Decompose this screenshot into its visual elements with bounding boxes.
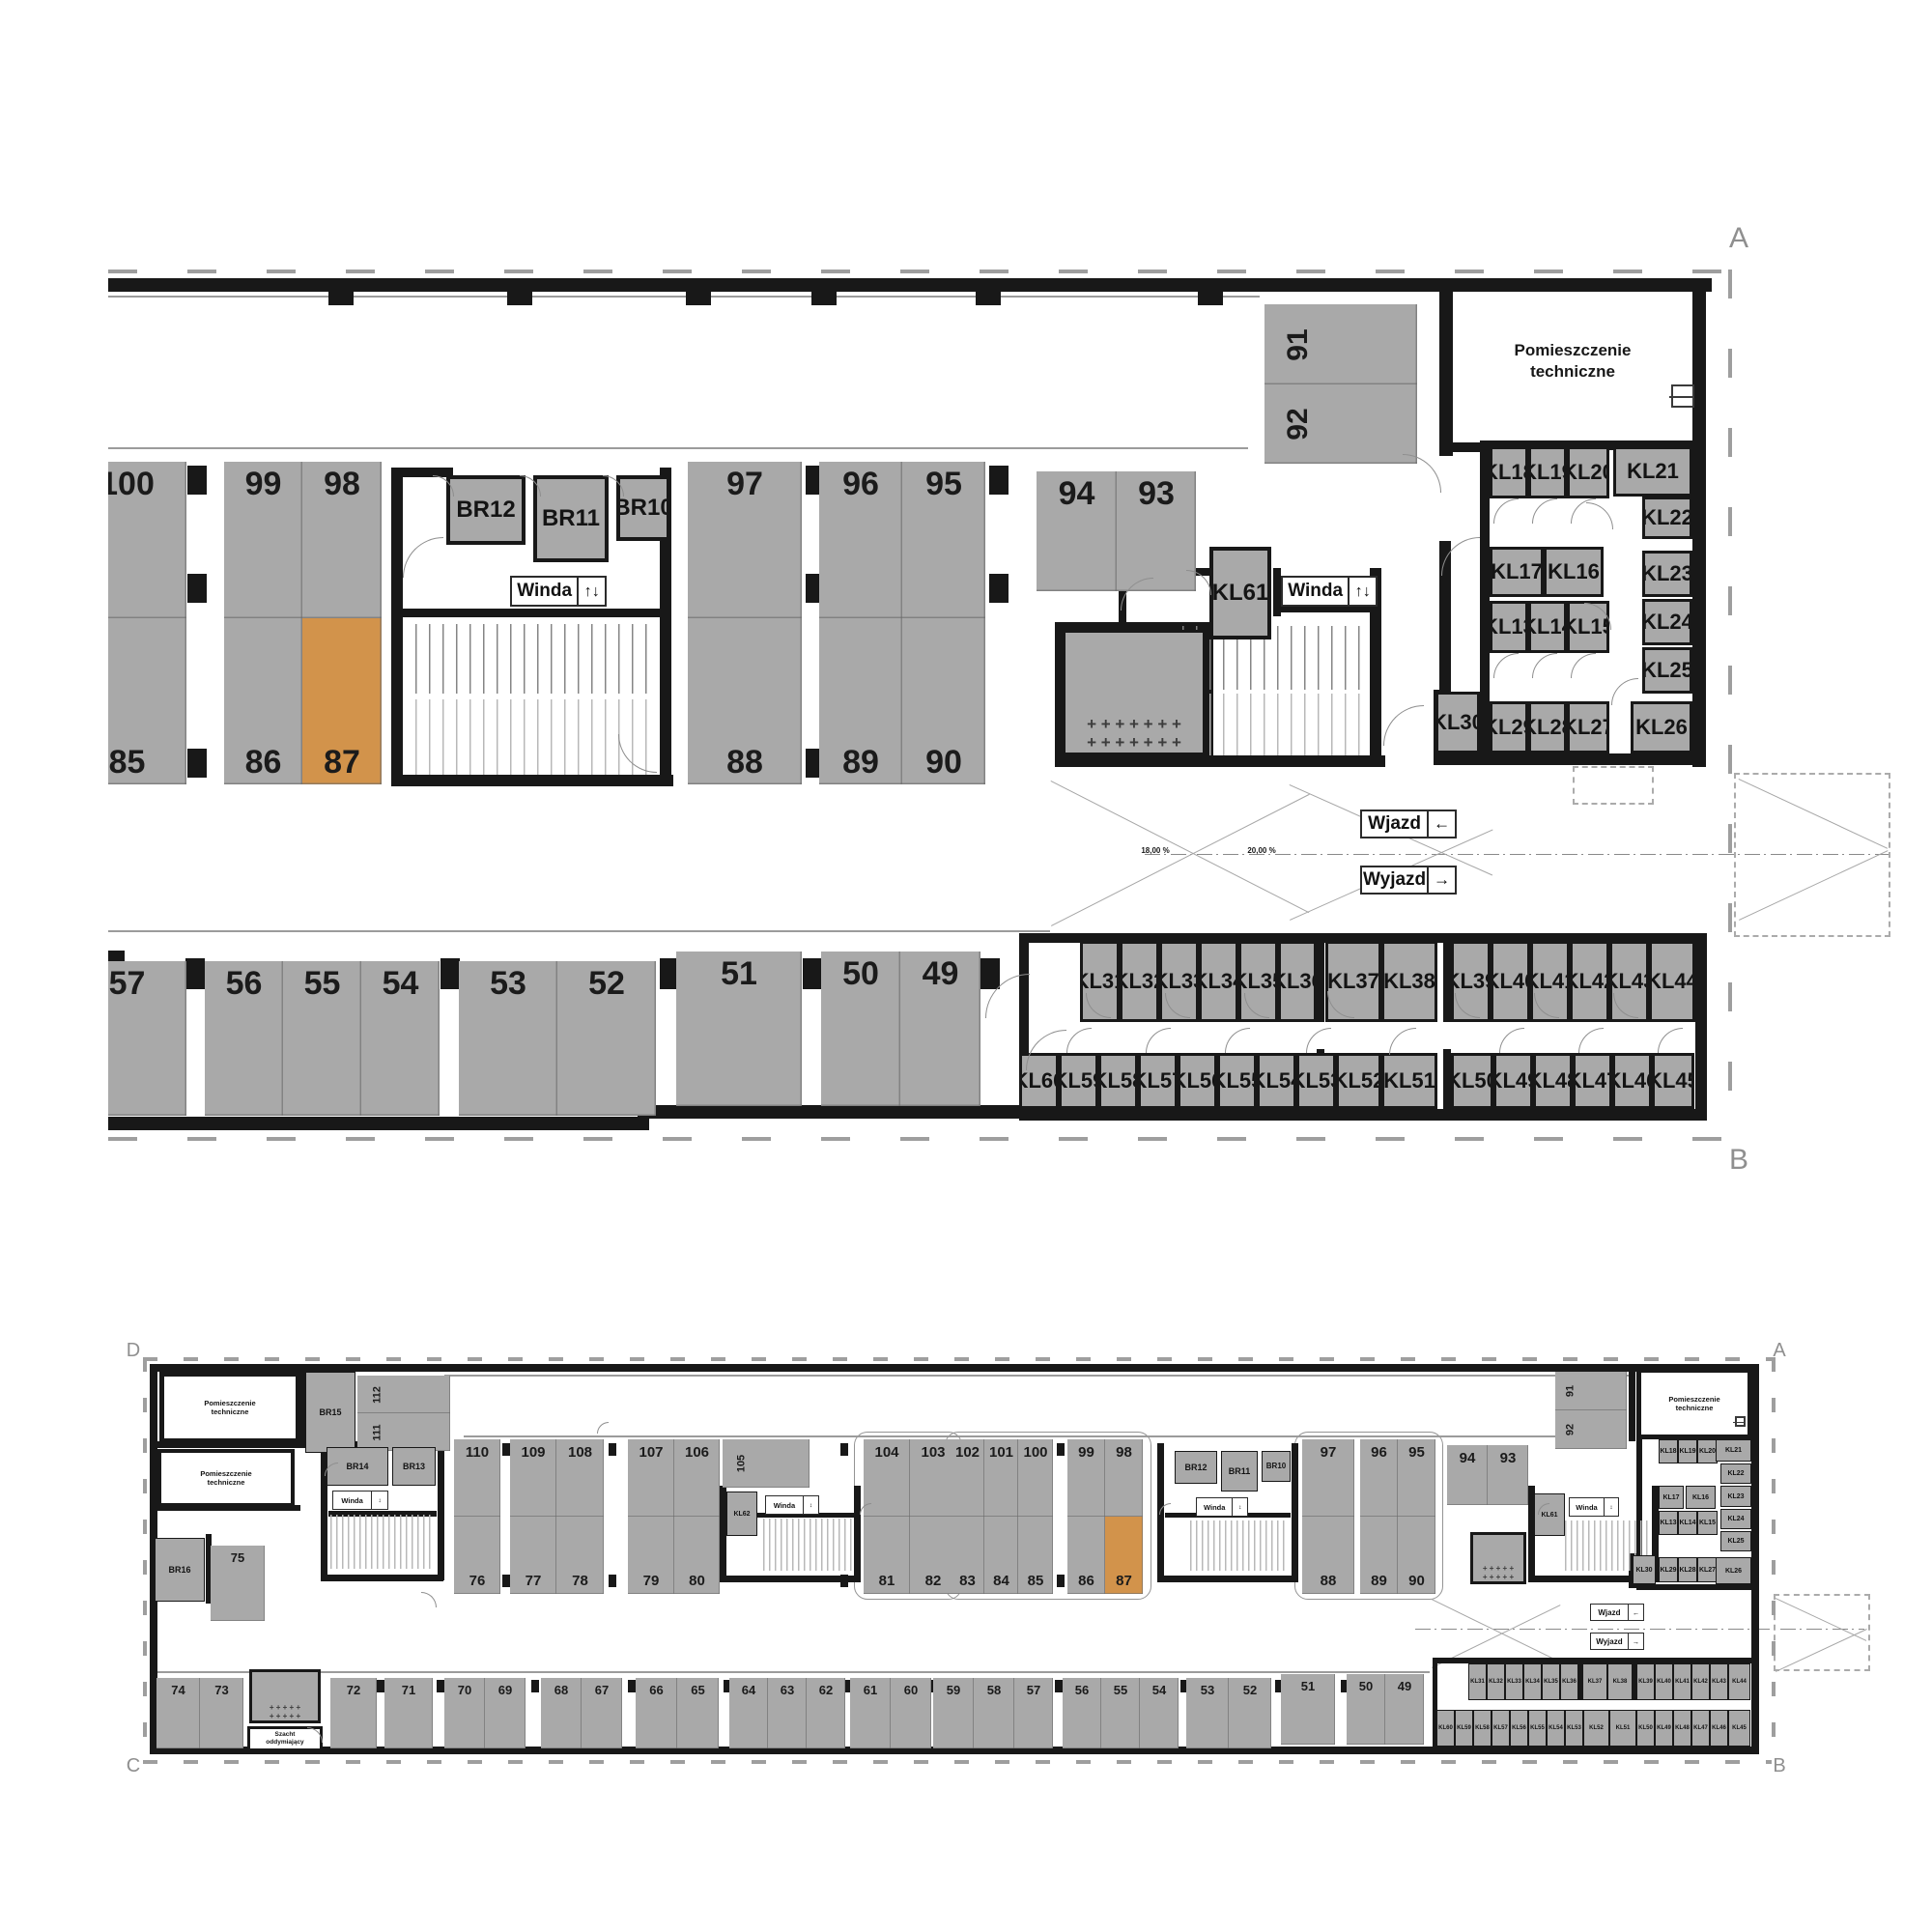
parking-spot-label: 76	[469, 1574, 486, 1588]
parking-spot-72[interactable]: 72	[330, 1678, 377, 1748]
storage-room-BR12[interactable]: BR12	[1175, 1451, 1217, 1484]
parking-spot-label: 58	[987, 1684, 1001, 1696]
elevator-arrows-icon: ↕	[1232, 1498, 1247, 1516]
parking-spot-label: 82	[925, 1574, 942, 1588]
parking-spot-label: 104	[874, 1445, 898, 1460]
parking-spot-70[interactable]: 70	[444, 1678, 485, 1748]
parking-spot-label: 96	[1371, 1445, 1387, 1460]
storage-room-BR16[interactable]: BR16	[155, 1538, 205, 1602]
parking-spot-label: 106	[685, 1445, 709, 1460]
parking-spot-67[interactable]: 67	[582, 1678, 622, 1748]
parking-spot-label: 80	[689, 1574, 705, 1588]
parking-spot-111[interactable]: 111	[357, 1413, 450, 1451]
elevator-box: Winda↕	[1569, 1497, 1619, 1517]
parking-spot-53[interactable]: 53	[1186, 1678, 1229, 1748]
parking-spot-59[interactable]: 59	[933, 1678, 974, 1748]
column-pillar	[1057, 1575, 1065, 1587]
parking-spot-label: 60	[904, 1684, 918, 1696]
boundary-dash-line	[1772, 1357, 1776, 1762]
wall	[150, 1364, 1759, 1372]
elevator-label: Winda	[1570, 1498, 1604, 1516]
parking-spot-label: 59	[947, 1684, 960, 1696]
parking-spot-55[interactable]: 55	[1101, 1678, 1140, 1748]
parking-spot-95[interactable]: 95	[1398, 1439, 1435, 1517]
overview-floor-plan: 1121111101091081071061057677787980104103…	[0, 0, 1932, 1932]
arrow-left-icon: ←	[1628, 1605, 1643, 1620]
parking-spot-79[interactable]: 79	[628, 1517, 674, 1594]
wall	[1629, 1364, 1635, 1441]
parking-floor-plan-scene: 1008599988687978896958990949391925756555…	[0, 0, 1932, 1932]
parking-spot-label: 112	[373, 1386, 384, 1404]
storage-room-BR10[interactable]: BR10	[1262, 1451, 1291, 1482]
parking-spot-label: 89	[1371, 1574, 1387, 1588]
storage-room-BR11[interactable]: BR11	[1221, 1451, 1258, 1492]
gate-label: Wyjazd	[1591, 1634, 1628, 1649]
storage-room-KL57[interactable]: KL57	[1492, 1710, 1510, 1747]
storage-room-KL46[interactable]: KL46	[1710, 1710, 1728, 1747]
parking-spot-label: 86	[1078, 1574, 1094, 1588]
storage-room-KL37[interactable]: KL37	[1582, 1663, 1607, 1700]
parking-spot-80[interactable]: 80	[674, 1517, 720, 1594]
door-swing-arc	[421, 1592, 437, 1607]
parking-spot-label: 66	[649, 1684, 663, 1696]
storage-room-KL19[interactable]: KL19	[1678, 1439, 1697, 1463]
parking-spot-label: 93	[1500, 1451, 1517, 1465]
parking-spot-52[interactable]: 52	[1229, 1678, 1271, 1748]
parking-spot-label: 99	[1078, 1445, 1094, 1460]
parking-spot-88[interactable]: 88	[1302, 1517, 1354, 1594]
parking-spot-label: 92	[1566, 1424, 1577, 1435]
parking-spot-label: 73	[214, 1684, 228, 1696]
parking-spot-label: 75	[231, 1551, 244, 1564]
parking-spot-90[interactable]: 90	[1398, 1517, 1435, 1594]
parking-spot-label: 55	[1114, 1684, 1127, 1696]
parking-spot-89[interactable]: 89	[1360, 1517, 1398, 1594]
parking-spot-label: 102	[955, 1445, 980, 1460]
parking-spot-98[interactable]: 98	[1105, 1439, 1143, 1517]
storage-room-KL48[interactable]: KL48	[1673, 1710, 1691, 1747]
parking-spot-label: 53	[1201, 1684, 1214, 1696]
column-pillar	[840, 1443, 848, 1456]
storage-room-KL16[interactable]: KL16	[1686, 1486, 1716, 1509]
elevator-label: Winda	[766, 1496, 803, 1514]
staircase	[1190, 1520, 1287, 1571]
parking-spot-108[interactable]: 108	[556, 1439, 604, 1517]
storage-room-KL50[interactable]: KL50	[1636, 1710, 1655, 1747]
parking-spot-label: 67	[595, 1684, 609, 1696]
parking-spot-label: 105	[736, 1455, 747, 1472]
parking-spot-57[interactable]: 57	[1014, 1678, 1053, 1748]
parking-spot-66[interactable]: 66	[636, 1678, 677, 1748]
storage-room-KL58[interactable]: KL58	[1473, 1710, 1492, 1747]
storage-room-KL49[interactable]: KL49	[1655, 1710, 1673, 1747]
parking-spot-60[interactable]: 60	[891, 1678, 931, 1748]
bike-rack-icon-row: + + + + +	[270, 1703, 300, 1712]
bike-rack-room: + + + + ++ + + + +	[1470, 1532, 1526, 1584]
technical-room: Pomieszczenie techniczne	[1636, 1368, 1752, 1439]
parking-spot-99[interactable]: 99	[1067, 1439, 1105, 1517]
parking-spot-label: 56	[1075, 1684, 1089, 1696]
parking-spot-58[interactable]: 58	[974, 1678, 1014, 1748]
wall	[321, 1575, 443, 1581]
parking-spot-label: 110	[466, 1445, 489, 1460]
storage-room-KL47[interactable]: KL47	[1691, 1710, 1710, 1747]
arrow-right-icon: →	[1628, 1634, 1643, 1649]
storage-room-KL13[interactable]: KL13	[1659, 1511, 1678, 1535]
column-pillar	[628, 1680, 636, 1692]
elevator-label: Winda	[333, 1492, 371, 1509]
parking-spot-label: 91	[1566, 1385, 1577, 1397]
parking-spot-label: 83	[959, 1574, 976, 1588]
column-pillar	[437, 1680, 444, 1692]
storage-room-KL35[interactable]: KL35	[1542, 1663, 1560, 1700]
storage-room-KL29[interactable]: KL29	[1659, 1557, 1678, 1582]
parking-spot-105[interactable]: 105	[723, 1439, 810, 1488]
boundary-dash-line	[143, 1760, 1772, 1764]
storage-room-KL23[interactable]: KL23	[1720, 1486, 1751, 1507]
parking-spot-86[interactable]: 86	[1067, 1517, 1105, 1594]
aisle-line	[444, 1375, 1629, 1377]
column-pillar	[840, 1575, 848, 1587]
parking-spot-label: 84	[993, 1574, 1009, 1588]
boundary-dash-line	[143, 1357, 1772, 1361]
storage-room-KL55[interactable]: KL55	[1528, 1710, 1547, 1747]
storage-room-KL59[interactable]: KL59	[1455, 1710, 1473, 1747]
parking-spot-78[interactable]: 78	[556, 1517, 604, 1594]
storage-room-KL52[interactable]: KL52	[1583, 1710, 1609, 1747]
parking-spot-49[interactable]: 49	[1385, 1674, 1424, 1745]
parking-spot-94[interactable]: 94	[1447, 1445, 1488, 1505]
storage-room-KL33[interactable]: KL33	[1505, 1663, 1523, 1700]
parking-spot-label: 88	[1321, 1574, 1337, 1588]
parking-spot-71[interactable]: 71	[384, 1678, 433, 1748]
ramp-dashed-outline	[1774, 1594, 1870, 1671]
parking-spot-51[interactable]: 51	[1281, 1674, 1335, 1745]
parking-spot-label: 107	[639, 1445, 663, 1460]
column-pillar	[377, 1680, 384, 1692]
axis-corner-label-d: D	[127, 1341, 140, 1360]
parking-spot-label: 74	[171, 1684, 185, 1696]
parking-spot-label: 52	[1243, 1684, 1257, 1696]
storage-room-KL28[interactable]: KL28	[1678, 1557, 1697, 1582]
elevator-box: Winda↕	[332, 1491, 388, 1510]
column-pillar	[609, 1575, 616, 1587]
parking-spot-63[interactable]: 63	[768, 1678, 807, 1748]
storage-room-KL31[interactable]: KL31	[1468, 1663, 1487, 1700]
parking-spot-label: 65	[691, 1684, 704, 1696]
parking-spot-label: 98	[1116, 1445, 1132, 1460]
parking-spot-110[interactable]: 110	[454, 1439, 500, 1517]
parking-spot-97[interactable]: 97	[1302, 1439, 1354, 1517]
parking-spot-93[interactable]: 93	[1488, 1445, 1528, 1505]
parking-spot-label: 87	[1116, 1574, 1132, 1588]
parking-spot-85[interactable]: 85	[1018, 1517, 1053, 1594]
parking-spot-label: 95	[1408, 1445, 1425, 1460]
storage-room-KL40[interactable]: KL40	[1655, 1663, 1673, 1700]
parking-spot-label: 72	[347, 1684, 360, 1696]
storage-room-BR13[interactable]: BR13	[392, 1447, 436, 1486]
wall	[1157, 1576, 1298, 1582]
parking-spot-label: 97	[1321, 1445, 1337, 1460]
wall	[1751, 1364, 1759, 1754]
technical-room: Pomieszczenie techniczne	[159, 1372, 300, 1443]
elevator-label: Winda	[1197, 1498, 1232, 1516]
elevator-box: Winda↕	[1196, 1497, 1248, 1517]
parking-spot-label: 71	[402, 1684, 415, 1696]
storage-room-KL20[interactable]: KL20	[1697, 1439, 1718, 1463]
storage-room-KL53[interactable]: KL53	[1565, 1710, 1583, 1747]
parking-spot-label: 63	[781, 1684, 794, 1696]
storage-room-KL18[interactable]: KL18	[1659, 1439, 1678, 1463]
parking-spot-label: 64	[742, 1684, 755, 1696]
storage-room-KL36[interactable]: KL36	[1560, 1663, 1578, 1700]
column-pillar	[531, 1680, 539, 1692]
wall	[1636, 1584, 1752, 1590]
storage-room-KL25[interactable]: KL25	[1720, 1531, 1751, 1551]
column-pillar	[1057, 1443, 1065, 1456]
parking-spot-76[interactable]: 76	[454, 1517, 500, 1594]
parking-spot-84[interactable]: 84	[984, 1517, 1018, 1594]
storage-room-KL42[interactable]: KL42	[1691, 1663, 1710, 1700]
storage-room-KL22[interactable]: KL22	[1720, 1463, 1751, 1484]
axis-corner-label-a: A	[1773, 1341, 1785, 1360]
storage-room-KL14[interactable]: KL14	[1678, 1511, 1697, 1535]
storage-room-KL51[interactable]: KL51	[1609, 1710, 1636, 1747]
parking-spot-label: 103	[921, 1445, 945, 1460]
parking-spot-label: 57	[1027, 1684, 1040, 1696]
parking-spot-92[interactable]: 92	[1555, 1410, 1627, 1449]
parking-spot-69[interactable]: 69	[485, 1678, 526, 1748]
parking-spot-label: 51	[1301, 1680, 1315, 1692]
parking-spot-label: 78	[572, 1574, 588, 1588]
wall	[438, 1441, 444, 1580]
wall	[1292, 1443, 1298, 1582]
parking-spot-label: 109	[521, 1445, 545, 1460]
parking-spot-103[interactable]: 103	[910, 1439, 956, 1517]
parking-spot-75[interactable]: 75	[211, 1546, 265, 1621]
parking-spot-101[interactable]: 101	[984, 1439, 1018, 1517]
parking-spot-label: 90	[1408, 1574, 1425, 1588]
storage-room-KL34[interactable]: KL34	[1523, 1663, 1542, 1700]
aisle-line	[155, 1671, 1430, 1673]
parking-spot-label: 61	[864, 1684, 877, 1696]
parking-spot-77[interactable]: 77	[510, 1517, 556, 1594]
plan-crop-mask	[0, 232, 108, 1198]
column-pillar	[609, 1443, 616, 1456]
parking-spot-74[interactable]: 74	[156, 1678, 200, 1748]
parking-spot-64[interactable]: 64	[729, 1678, 768, 1748]
parking-spot-label: 111	[373, 1424, 384, 1440]
vent-symbol	[1735, 1416, 1746, 1427]
parking-spot-label: 68	[554, 1684, 568, 1696]
parking-spot-label: 70	[458, 1684, 471, 1696]
parking-spot-label: 108	[568, 1445, 592, 1460]
parking-spot-61[interactable]: 61	[850, 1678, 891, 1748]
parking-spot-label: 79	[643, 1574, 660, 1588]
storage-room-KL56[interactable]: KL56	[1510, 1710, 1528, 1747]
storage-room-KL24[interactable]: KL24	[1720, 1509, 1751, 1529]
storage-room-KL15[interactable]: KL15	[1697, 1511, 1718, 1535]
parking-spot-label: 69	[498, 1684, 512, 1696]
parking-spot-102[interactable]: 102	[951, 1439, 984, 1517]
storage-room-KL21[interactable]: KL21	[1716, 1439, 1751, 1462]
parking-spot-112[interactable]: 112	[357, 1376, 450, 1413]
bike-rack-icon-row: + + + + +	[270, 1712, 300, 1720]
staircase	[330, 1515, 431, 1569]
parking-spot-label: 94	[1460, 1451, 1476, 1465]
parking-spot-68[interactable]: 68	[541, 1678, 582, 1748]
storage-room-KL54[interactable]: KL54	[1547, 1710, 1565, 1747]
bike-rack-room: + + + + ++ + + + +	[249, 1669, 321, 1723]
technical-room: Pomieszczenie techniczne	[157, 1449, 295, 1507]
parking-spot-label: 62	[819, 1684, 833, 1696]
storage-room-KL44[interactable]: KL44	[1728, 1663, 1750, 1700]
door-swing-arc	[597, 1422, 609, 1434]
parking-spot-label: 101	[989, 1445, 1013, 1460]
column-pillar	[1055, 1680, 1063, 1692]
elevator-box: Winda↕	[765, 1495, 819, 1515]
bike-rack-icon-row: + + + + +	[1483, 1573, 1514, 1581]
parking-spot-62[interactable]: 62	[807, 1678, 845, 1748]
elevator-arrows-icon: ↕	[803, 1496, 818, 1514]
parking-spot-label: 77	[526, 1574, 542, 1588]
parking-spot-106[interactable]: 106	[674, 1439, 720, 1517]
parking-spot-107[interactable]: 107	[628, 1439, 674, 1517]
wall	[854, 1486, 861, 1582]
wall	[720, 1486, 726, 1582]
parking-spot-label: 85	[1028, 1574, 1044, 1588]
storage-room-BR15[interactable]: BR15	[305, 1372, 355, 1453]
parking-spot-65[interactable]: 65	[677, 1678, 719, 1748]
parking-spot-73[interactable]: 73	[200, 1678, 243, 1748]
boundary-dash-line	[143, 1357, 147, 1762]
storage-room-KL60[interactable]: KL60	[1436, 1710, 1455, 1747]
parking-spot-label: 81	[879, 1574, 895, 1588]
bike-rack-icon-row: + + + + +	[1483, 1564, 1514, 1573]
storage-room-KL41[interactable]: KL41	[1673, 1663, 1691, 1700]
parking-spot-91[interactable]: 91	[1555, 1372, 1627, 1410]
parking-spot-label: 50	[1359, 1680, 1373, 1692]
column-pillar	[502, 1443, 510, 1456]
storage-room-KL30[interactable]: KL30	[1633, 1555, 1656, 1584]
storage-room-KL17[interactable]: KL17	[1659, 1486, 1684, 1509]
storage-room-KL62[interactable]: KL62	[726, 1492, 757, 1536]
elevator-arrows-icon: ↕	[371, 1492, 387, 1509]
storage-room-KL43[interactable]: KL43	[1710, 1663, 1728, 1700]
elevator-arrows-icon: ↕	[1604, 1498, 1618, 1516]
aisle-line	[464, 1435, 1623, 1437]
parking-spot-81[interactable]: 81	[864, 1517, 910, 1594]
storage-room-KL27[interactable]: KL27	[1697, 1557, 1718, 1582]
gate-label: Wjazd	[1591, 1605, 1628, 1620]
axis-corner-label-b: B	[1773, 1756, 1785, 1776]
parking-spot-label: 54	[1152, 1684, 1166, 1696]
entry-label-box: Wjazd←	[1590, 1604, 1644, 1621]
axis-corner-label-c: C	[127, 1756, 140, 1776]
parking-spot-83[interactable]: 83	[951, 1517, 984, 1594]
parking-spot-96[interactable]: 96	[1360, 1439, 1398, 1517]
parking-spot-label: 49	[1398, 1680, 1411, 1692]
storage-room-KL61[interactable]: KL61	[1534, 1493, 1565, 1536]
column-pillar	[502, 1575, 510, 1587]
parking-spot-label: 100	[1023, 1445, 1047, 1460]
parking-spot-100[interactable]: 100	[1018, 1439, 1053, 1517]
storage-room-KL38[interactable]: KL38	[1607, 1663, 1633, 1700]
storage-room-KL26[interactable]: KL26	[1716, 1557, 1751, 1584]
storage-room-KL45[interactable]: KL45	[1728, 1710, 1750, 1747]
parking-spot-109[interactable]: 109	[510, 1439, 556, 1517]
storage-room-KL32[interactable]: KL32	[1487, 1663, 1505, 1700]
staircase	[763, 1519, 854, 1571]
parking-spot-82[interactable]: 82	[910, 1517, 956, 1594]
parking-spot-54[interactable]: 54	[1140, 1678, 1179, 1748]
road-marking-line	[1431, 1599, 1560, 1662]
exit-label-box: Wyjazd→	[1590, 1633, 1644, 1650]
parking-spot-87[interactable]: 87	[1105, 1517, 1143, 1594]
parking-spot-56[interactable]: 56	[1063, 1678, 1101, 1748]
parking-spot-50[interactable]: 50	[1347, 1674, 1385, 1745]
storage-room-KL39[interactable]: KL39	[1636, 1663, 1655, 1700]
